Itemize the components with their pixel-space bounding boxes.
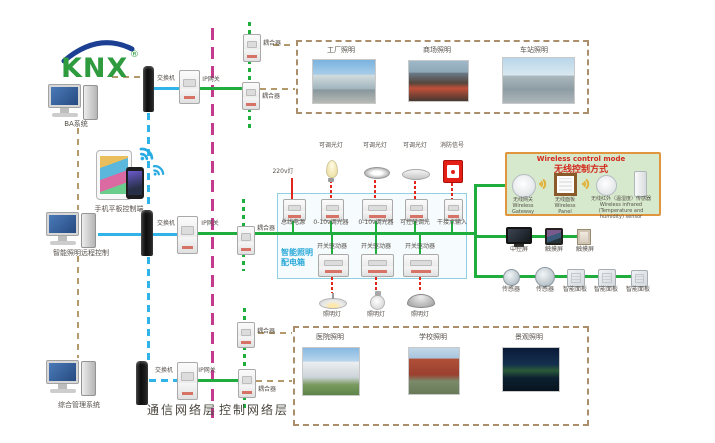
- bus-line-segment: [198, 87, 243, 90]
- monitor: [46, 212, 79, 236]
- wifi-signal-icon: [582, 178, 592, 190]
- wireless-sensor-device: [596, 175, 617, 196]
- bus-line-segment: [242, 199, 245, 226]
- bus-line-segment: [243, 346, 246, 369]
- computer-tower: [81, 361, 96, 396]
- backbone-line-segment: [256, 380, 292, 382]
- module-switch-actuator-1: [318, 254, 349, 277]
- management-computer: [46, 360, 98, 400]
- smart-panel-label-1: 智能面板: [563, 287, 587, 294]
- sensor-label-1: 传感器: [502, 287, 520, 294]
- building-label-station: 车站照明: [520, 46, 548, 54]
- building-label-factory: 工厂照明: [327, 46, 355, 54]
- central-screen: [506, 227, 532, 244]
- smart-panel-label-3: 智能面板: [626, 287, 650, 294]
- building-label-hospital: 医院照明: [316, 333, 344, 341]
- load-line-segment: [291, 178, 293, 200]
- logo-reg-mark: ®: [130, 50, 139, 60]
- wireless-gateway-label: 无线网关Wireless Gateway: [506, 197, 540, 215]
- load-line-segment: [330, 180, 332, 199]
- building-photo-school: [408, 347, 460, 395]
- module-switch-actuator-3: [403, 254, 439, 277]
- bus-line-segment: [248, 108, 251, 130]
- module-label-scr-dimmer: 可控硅调光: [400, 220, 430, 227]
- network-switch-1: [143, 66, 154, 112]
- computer-tower: [83, 85, 98, 120]
- bulb-lamp-icon: [370, 295, 385, 310]
- coupler-5: [238, 369, 256, 398]
- comm-line-segment: [153, 233, 178, 236]
- ctrl-layer-label: 控制网络层: [219, 401, 289, 418]
- building-label-school: 学校照明: [419, 333, 447, 341]
- comm-line-segment: [147, 257, 150, 360]
- monitor: [46, 360, 79, 384]
- wireless-sensor-device: [634, 171, 647, 197]
- sensor-1: [503, 269, 520, 286]
- module-scr-dimmer: [405, 199, 428, 221]
- comm-line-segment: [98, 233, 142, 236]
- supply-label: 220v灯: [272, 169, 293, 176]
- building-photo-factory: [312, 59, 376, 104]
- management-system-label: 综合管理系统: [58, 401, 100, 409]
- monitor: [48, 84, 81, 108]
- network-switch-3: [136, 361, 148, 405]
- module-label-dimmer-2: 0-10v调光器: [358, 220, 393, 227]
- module-dry-contact: [444, 199, 463, 221]
- switch-label-1: 交换机: [157, 76, 175, 83]
- coupler-3: [237, 226, 255, 255]
- comm-line-segment: [149, 379, 177, 382]
- building-label-mall: 商场照明: [423, 46, 451, 54]
- coupler-label-4: 耦合器: [257, 329, 275, 336]
- panel-title: 智能照明配电箱: [281, 248, 313, 268]
- ba-computer: [48, 84, 100, 124]
- switch-label-3: 交换机: [155, 368, 173, 375]
- load-label-lamp-1: 照明灯: [323, 312, 341, 319]
- central-screen-label: 中控屏: [510, 247, 528, 254]
- load-line-segment: [414, 181, 416, 199]
- coupler-label-3: 耦合器: [257, 226, 275, 233]
- module-bus-power: [283, 199, 306, 221]
- load-line-segment: [451, 183, 453, 199]
- ip-gateway-label-2: IP网关: [201, 221, 218, 228]
- fire-signal-label: 消防信号: [440, 143, 464, 150]
- knx-lighting-diagram: KNX ® BA系统 手机平板控制端 智能照明远程控制 综合管理系统 交换机 I…: [0, 0, 715, 443]
- smart-panel-label-2: 智能面板: [594, 287, 618, 294]
- sensor-2: [535, 267, 555, 287]
- logo-text: KNX: [61, 53, 128, 82]
- bus-line-segment: [248, 60, 251, 82]
- bus-line-segment: [477, 184, 505, 187]
- load-line-segment: [375, 277, 377, 291]
- touch-screen-label-2: 触摸屏: [576, 247, 594, 254]
- load-label-dimmable-3: 可调光灯: [403, 143, 427, 150]
- computer-tower: [81, 213, 96, 248]
- ba-computer-label: BA系统: [64, 120, 88, 128]
- backbone-line-segment: [77, 256, 79, 358]
- bus-line-segment: [242, 253, 245, 271]
- ip-gateway-3: [177, 362, 198, 400]
- touch-screen-1: [545, 228, 563, 245]
- switch-label-2: 交换机: [157, 221, 175, 228]
- building-photo-landscape: [502, 347, 560, 392]
- module-label-dimmer-1: 0-10v调光器: [313, 220, 348, 227]
- coupler-label-5: 耦合器: [258, 387, 276, 394]
- module-label-actuator-2: 开关驱动器: [361, 244, 391, 251]
- touch-screen-label-1: 触摸屏: [545, 247, 563, 254]
- remote-control-label: 智能照明远程控制: [53, 249, 109, 257]
- mobile-control-label: 手机平板控制端: [95, 205, 144, 213]
- coupler-label-1: 耦合器: [263, 41, 281, 48]
- smart-panel-2: [598, 269, 616, 287]
- building-label-landscape: 景观照明: [515, 333, 543, 341]
- ip-gateway-2: [177, 216, 198, 254]
- load-line-segment: [374, 180, 376, 199]
- comm-layer-label: 通信网络层: [147, 401, 217, 418]
- load-label-lamp-2: 照明灯: [367, 312, 385, 319]
- wireless-panel-device: [554, 173, 577, 196]
- remote-control-computer: [46, 212, 98, 252]
- wireless-sensor-label: 无线红外（温湿度）传感器Wireless infrared (Temperatu…: [588, 196, 654, 220]
- ip-gateway-label-3: IP网关: [198, 368, 215, 375]
- phone-device: [126, 167, 144, 199]
- network-switch-2: [141, 210, 153, 256]
- smart-panel-1: [567, 269, 585, 287]
- module-label-dry-contact: 干接点输入: [437, 220, 467, 227]
- highbay-lamp-icon: [407, 294, 435, 308]
- load-line-segment: [419, 277, 421, 291]
- ceiling-lamp-icon: [402, 169, 430, 180]
- load-label-dimmable-1: 可调光灯: [319, 143, 343, 150]
- building-photo-hospital: [302, 347, 360, 396]
- wireless-panel-label: 无线面板Wireless Panel: [548, 197, 582, 215]
- module-dimmer-2: [362, 199, 393, 221]
- touch-screen-2: [577, 229, 591, 245]
- load-label-dimmable-2: 可调光灯: [363, 143, 387, 150]
- load-line-segment: [331, 277, 333, 293]
- wifi-signal-icon: [539, 178, 549, 190]
- module-label-bus-power: 总线电源: [281, 220, 305, 227]
- coupler-label-2: 耦合器: [262, 94, 280, 101]
- module-dimmer-1: [321, 199, 344, 221]
- wireless-gateway-device: [512, 174, 536, 198]
- building-photo-station: [502, 57, 575, 104]
- fire-alarm-icon: [443, 160, 463, 183]
- knx-logo: KNX ®: [58, 36, 140, 82]
- bus-line-segment: [196, 379, 239, 382]
- building-photo-mall: [408, 60, 469, 102]
- module-switch-actuator-2: [361, 254, 394, 277]
- smart-panel-3: [631, 270, 648, 287]
- pendant-lamp-icon: [319, 298, 347, 309]
- backbone-line-segment: [260, 88, 295, 90]
- downlight-icon: [364, 167, 390, 179]
- backbone-line-segment: [77, 128, 79, 210]
- coupler-1: [243, 34, 261, 62]
- coupler-4: [237, 322, 255, 348]
- coupler-2: [242, 82, 260, 110]
- bus-line-segment: [243, 308, 246, 322]
- ip-gateway-1: [179, 70, 200, 104]
- module-label-actuator-3: 开关驱动器: [405, 244, 435, 251]
- comm-line-segment: [154, 87, 180, 90]
- load-label-lamp-3: 照明灯: [411, 312, 429, 319]
- dimmable-lamp-icon: [326, 160, 338, 178]
- sensor-label-2: 传感器: [536, 287, 554, 294]
- ip-gateway-label-1: IP网关: [202, 77, 219, 84]
- bus-line-segment: [474, 184, 477, 278]
- module-label-actuator-1: 开关驱动器: [317, 244, 347, 251]
